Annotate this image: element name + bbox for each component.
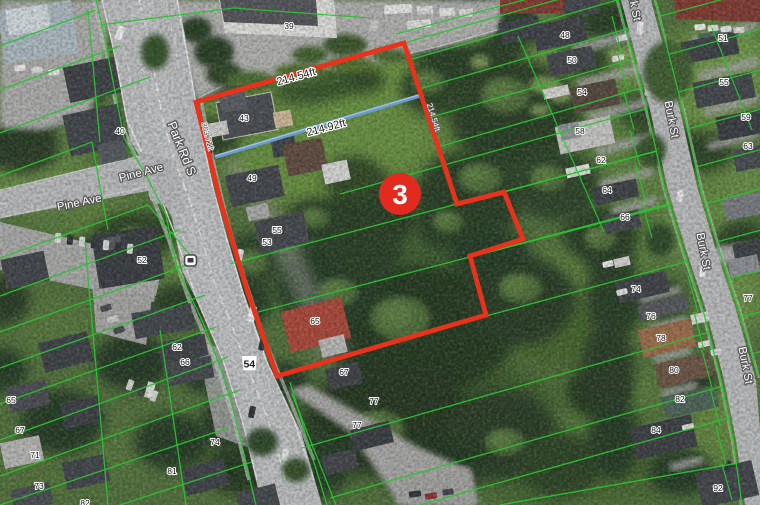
svg-text:62: 62 [596, 155, 606, 165]
svg-text:59: 59 [741, 112, 751, 122]
svg-text:65: 65 [6, 395, 16, 405]
svg-text:39: 39 [284, 21, 294, 31]
svg-text:67: 67 [15, 425, 25, 435]
svg-text:48: 48 [560, 30, 570, 40]
svg-text:82: 82 [675, 394, 685, 404]
svg-text:82: 82 [80, 498, 90, 505]
svg-text:55: 55 [719, 77, 729, 87]
svg-text:92: 92 [713, 483, 723, 493]
svg-text:77: 77 [743, 293, 753, 303]
svg-text:74: 74 [631, 284, 641, 294]
svg-text:63: 63 [743, 141, 753, 151]
svg-text:66: 66 [180, 357, 190, 367]
svg-text:67: 67 [339, 367, 349, 377]
svg-text:62: 62 [172, 342, 182, 352]
svg-text:74: 74 [210, 437, 220, 447]
svg-text:52: 52 [137, 255, 147, 265]
svg-text:81: 81 [167, 466, 177, 476]
svg-text:77: 77 [369, 396, 379, 406]
svg-text:76: 76 [646, 311, 656, 321]
svg-text:78: 78 [656, 333, 666, 343]
svg-text:84: 84 [651, 425, 661, 435]
svg-text:3: 3 [392, 179, 408, 210]
svg-text:77: 77 [352, 420, 362, 430]
svg-text:40: 40 [115, 126, 125, 136]
svg-text:50: 50 [567, 55, 577, 65]
svg-text:73: 73 [34, 481, 44, 491]
svg-text:54: 54 [577, 87, 587, 97]
svg-text:49: 49 [247, 173, 257, 183]
svg-text:71: 71 [30, 450, 40, 460]
svg-text:65: 65 [310, 316, 320, 326]
svg-text:80: 80 [669, 365, 679, 375]
svg-text:66: 66 [620, 212, 630, 222]
svg-text:64: 64 [602, 185, 612, 195]
svg-text:51: 51 [718, 33, 728, 43]
svg-text:55: 55 [272, 225, 282, 235]
svg-text:58: 58 [575, 126, 585, 136]
svg-text:54: 54 [243, 359, 255, 371]
svg-text:43: 43 [239, 113, 249, 123]
svg-text:53: 53 [262, 237, 272, 247]
